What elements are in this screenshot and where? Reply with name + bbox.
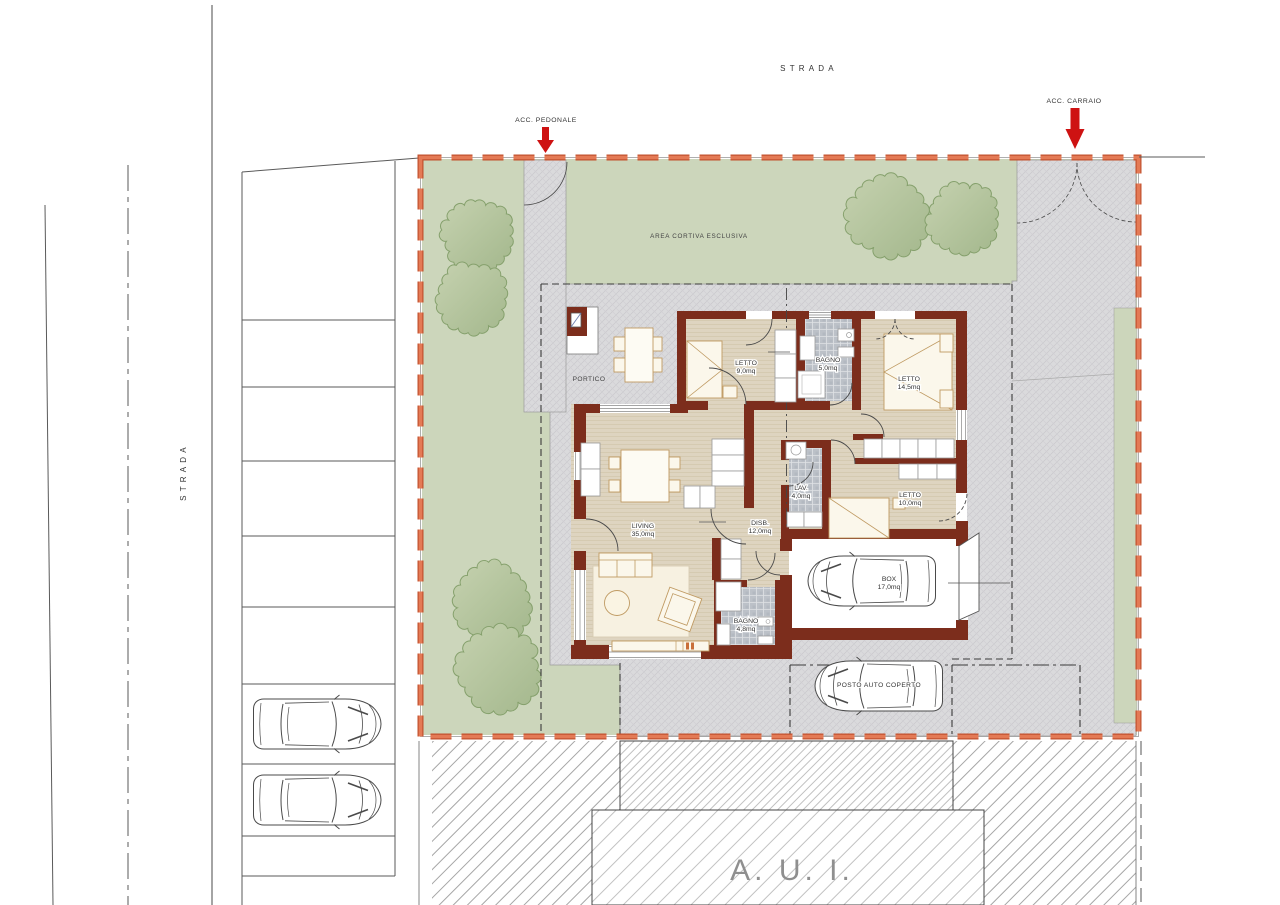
svg-text:STRADA: STRADA	[179, 443, 188, 501]
svg-text:BAGNO: BAGNO	[816, 357, 841, 364]
svg-text:4,0mq: 4,0mq	[792, 493, 811, 500]
svg-text:ACC. PEDONALE: ACC. PEDONALE	[515, 117, 577, 124]
svg-text:LAV.: LAV.	[794, 485, 808, 492]
svg-text:POSTO AUTO COPERTO: POSTO AUTO COPERTO	[837, 682, 921, 689]
svg-text:9,0mq: 9,0mq	[737, 368, 756, 375]
svg-text:BAGNO: BAGNO	[734, 618, 759, 625]
svg-text:ACC. CARRAIO: ACC. CARRAIO	[1046, 98, 1101, 105]
svg-text:LETTO: LETTO	[735, 360, 757, 367]
svg-text:4,8mq: 4,8mq	[737, 626, 756, 633]
svg-text:BOX: BOX	[882, 576, 897, 583]
svg-text:35,0mq: 35,0mq	[632, 531, 655, 538]
svg-text:5,0mq: 5,0mq	[819, 365, 838, 372]
svg-text:17,0mq: 17,0mq	[878, 584, 901, 591]
svg-text:10,0mq: 10,0mq	[899, 500, 922, 507]
svg-text:STRADA: STRADA	[780, 64, 838, 73]
svg-text:14,5mq: 14,5mq	[898, 384, 921, 391]
svg-text:A. U. I.: A. U. I.	[730, 854, 854, 887]
svg-text:LIVING: LIVING	[632, 523, 654, 530]
svg-text:AREA CORTIVA ESCLUSIVA: AREA CORTIVA ESCLUSIVA	[650, 233, 748, 240]
svg-text:DISB.: DISB.	[751, 520, 769, 527]
svg-text:LETTO: LETTO	[898, 376, 920, 383]
svg-text:12,0mq: 12,0mq	[749, 528, 772, 535]
svg-text:PORTICO: PORTICO	[573, 376, 606, 383]
svg-text:LETTO: LETTO	[899, 492, 921, 499]
